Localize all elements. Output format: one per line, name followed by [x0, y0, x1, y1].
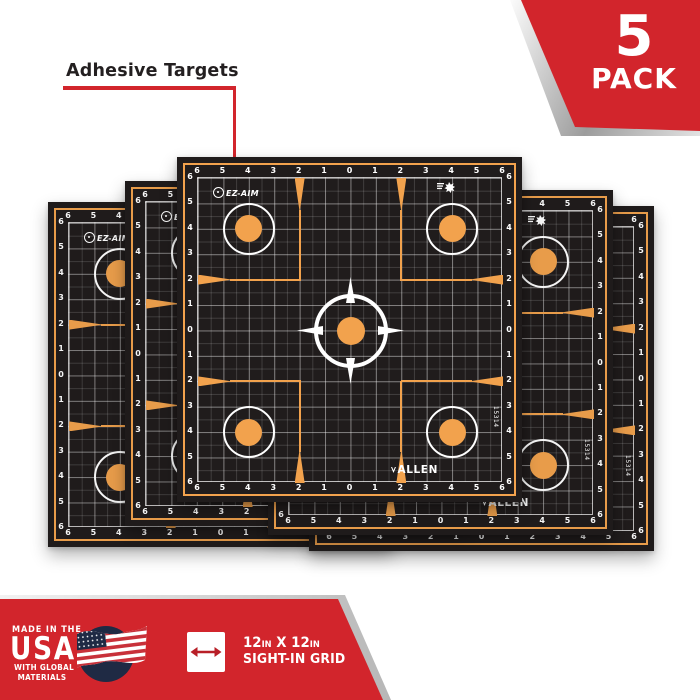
scale-number: 2	[503, 375, 515, 385]
scale-number: 0	[215, 528, 227, 538]
bullseye-dot	[439, 419, 466, 446]
scale-number: 3	[503, 248, 515, 258]
scale-number: 5	[562, 516, 574, 526]
scale-number: 0	[435, 516, 447, 526]
scale-number: 4	[333, 516, 345, 526]
size-label-line1: 12IN X 12IN	[243, 635, 320, 651]
scale-number: 5	[132, 221, 144, 231]
scale-number: 1	[55, 395, 67, 405]
scale-number: 4	[536, 516, 548, 526]
scale-number: 1	[55, 344, 67, 354]
scale-number: 1	[369, 166, 381, 176]
scale-number: 3	[184, 401, 196, 411]
bullseye-dot	[439, 215, 466, 242]
scale-number: 3	[358, 516, 370, 526]
item-number: 15314	[583, 439, 590, 461]
us-flag-icon	[74, 623, 150, 679]
scale-number: 6	[635, 526, 647, 536]
scale-number: 4	[55, 268, 67, 278]
scale-number: 2	[635, 424, 647, 434]
scale-number: 1	[503, 350, 515, 360]
aim-wedge	[469, 376, 503, 386]
scale-number: 6	[132, 196, 144, 206]
scale-number: 1	[132, 323, 144, 333]
scale-number: 1	[594, 383, 606, 393]
scale-number: 6	[594, 510, 606, 520]
reticle-icon	[84, 232, 95, 243]
scale-number: 3	[635, 297, 647, 307]
scale-number: 1	[409, 516, 421, 526]
scale-number: 3	[267, 483, 279, 493]
scale-number: 4	[445, 166, 457, 176]
aim-wedge	[69, 320, 103, 330]
scale-number: 2	[384, 516, 396, 526]
scale-number: 4	[594, 256, 606, 266]
bracket-line	[401, 380, 472, 382]
scale-number: 5	[562, 199, 574, 209]
aim-wedge	[198, 275, 232, 285]
ez-aim-logo: EZ-AIM	[213, 181, 259, 200]
scale-number: 3	[503, 401, 515, 411]
scale-number: 3	[138, 528, 150, 538]
reticle-icon	[161, 211, 172, 222]
scale-number: 5	[307, 516, 319, 526]
scale-number: 4	[132, 450, 144, 460]
aim-wedge	[146, 299, 180, 309]
scale-number: 3	[420, 483, 432, 493]
scale-number: 1	[503, 299, 515, 309]
scale-number: 4	[55, 471, 67, 481]
bullseye-dot	[337, 317, 365, 345]
crosshair-spike	[346, 358, 355, 384]
adhesive-targets-callout: Adhesive Targets	[66, 61, 239, 81]
scale-number: 5	[471, 166, 483, 176]
scale-number: 4	[184, 223, 196, 233]
crosshair-spike	[297, 326, 323, 335]
scale-number: 3	[55, 293, 67, 303]
aim-wedge	[295, 178, 305, 212]
scale-number: 3	[184, 248, 196, 258]
corner-bullseye	[517, 236, 569, 288]
aim-wedge	[146, 400, 180, 410]
scale-number: 5	[594, 230, 606, 240]
scale-number: 5	[184, 197, 196, 207]
scale-number: 3	[594, 281, 606, 291]
scale-number: 4	[113, 211, 125, 221]
scale-number: 5	[216, 166, 228, 176]
bracket-line	[400, 210, 402, 281]
scale-number: 4	[635, 272, 647, 282]
scale-number: 4	[635, 475, 647, 485]
scale-number: 2	[132, 298, 144, 308]
sight-in-grid: EZ-AIMALLEN15314	[197, 177, 502, 482]
scale-number: 1	[318, 166, 330, 176]
callout-pointer-line	[233, 86, 237, 162]
scale-number: 4	[242, 166, 254, 176]
pack-word: PACK	[575, 65, 693, 93]
scale-number: 0	[635, 374, 647, 384]
width-arrow-icon	[187, 632, 225, 672]
item-number: 15314	[492, 406, 499, 428]
scale-number: 6	[503, 477, 515, 487]
scale-number: 6	[275, 510, 287, 520]
scale-number: 0	[184, 325, 196, 335]
scale-number: 3	[55, 446, 67, 456]
scale-number: 4	[445, 483, 457, 493]
pack-ribbon-text: 5 PACK	[575, 10, 693, 93]
bracket-line	[299, 381, 301, 452]
product-image: Adhesive Targets 5 PACK 6666555544443333…	[0, 0, 700, 700]
ez-aim-logo: EZ-AIM	[84, 226, 130, 245]
bullseye-dot	[235, 215, 262, 242]
usa-text: USA	[10, 631, 76, 667]
splat-badge-icon	[528, 213, 546, 227]
scale-number: 4	[503, 223, 515, 233]
scale-number: 6	[628, 215, 640, 225]
scale-number: 0	[344, 166, 356, 176]
corner-bullseye	[426, 203, 478, 255]
with-global-materials-text: WITH GLOBAL MATERIALS	[14, 663, 74, 682]
scale-number: 4	[190, 507, 202, 517]
scale-number: 2	[394, 166, 406, 176]
reticle-icon	[213, 187, 224, 198]
bullseye-dot	[530, 452, 557, 479]
scale-number: 4	[184, 426, 196, 436]
corner-bullseye	[517, 439, 569, 491]
scale-number: 2	[635, 323, 647, 333]
scale-number: 6	[132, 501, 144, 511]
scale-number: 2	[293, 483, 305, 493]
pack-ribbon: 5 PACK	[505, 0, 700, 136]
scale-number: 1	[318, 483, 330, 493]
aim-wedge	[469, 275, 503, 285]
footer-banner: MADE IN THE USA WITH GLOBAL MATERIALS	[0, 595, 700, 700]
scale-number: 2	[184, 274, 196, 284]
scale-number: 2	[485, 516, 497, 526]
scale-number: 4	[242, 483, 254, 493]
scale-number: 6	[184, 477, 196, 487]
bracket-line	[400, 381, 402, 452]
corner-bullseye	[223, 406, 275, 458]
scale-number: 2	[594, 307, 606, 317]
bracket-line	[230, 279, 301, 281]
scale-number: 3	[215, 507, 227, 517]
scale-number: 4	[594, 459, 606, 469]
scale-number: 0	[55, 370, 67, 380]
scale-number: 4	[503, 426, 515, 436]
scale-number: 3	[132, 272, 144, 282]
scale-number: 2	[594, 408, 606, 418]
corner-bullseye	[426, 406, 478, 458]
scale-number: 5	[635, 501, 647, 511]
scale-number: 4	[536, 199, 548, 209]
scale-number: 6	[184, 172, 196, 182]
scale-number: 3	[635, 450, 647, 460]
aim-wedge	[560, 409, 594, 419]
scale-number: 2	[503, 274, 515, 284]
crosshair-spike	[378, 326, 404, 335]
scale-number: 0	[594, 358, 606, 368]
scale-number: 2	[55, 420, 67, 430]
scale-number: 1	[460, 516, 472, 526]
scale-number: 4	[113, 528, 125, 538]
scale-number: 5	[164, 190, 176, 200]
scale-number: 5	[635, 246, 647, 256]
scale-number: 6	[55, 217, 67, 227]
bracket-line	[401, 279, 472, 281]
scale-number: 1	[635, 348, 647, 358]
scale-number: 2	[184, 375, 196, 385]
scale-number: 1	[240, 528, 252, 538]
scale-number: 3	[594, 434, 606, 444]
scale-number: 1	[184, 299, 196, 309]
scale-number: 3	[420, 166, 432, 176]
aim-wedge	[198, 376, 232, 386]
scale-number: 1	[369, 483, 381, 493]
scale-number: 5	[132, 476, 144, 486]
scale-number: 6	[496, 166, 508, 176]
scale-number: 2	[164, 528, 176, 538]
bracket-line	[230, 380, 301, 382]
scale-number: 2	[394, 483, 406, 493]
allen-logo-mark	[391, 467, 396, 473]
scale-number: 2	[55, 319, 67, 329]
bullseye-dot	[235, 419, 262, 446]
scale-number: 5	[87, 211, 99, 221]
scale-number: 0	[503, 325, 515, 335]
scale-number: 5	[471, 483, 483, 493]
scale-number: 5	[503, 452, 515, 462]
scale-number: 1	[189, 528, 201, 538]
bracket-line	[299, 210, 301, 281]
aim-wedge	[69, 421, 103, 431]
scale-number: 5	[87, 528, 99, 538]
scale-number: 0	[132, 349, 144, 359]
allen-brand: ALLEN	[391, 464, 438, 476]
scale-number: 5	[184, 452, 196, 462]
aim-wedge	[295, 449, 305, 483]
item-number: 15314	[624, 455, 631, 477]
corner-bullseye	[223, 203, 275, 255]
scale-number: 1	[635, 399, 647, 409]
scale-number: 6	[55, 522, 67, 532]
scale-number: 6	[587, 199, 599, 209]
scale-number: 5	[164, 507, 176, 517]
scale-number: 3	[132, 425, 144, 435]
scale-number: 5	[55, 497, 67, 507]
scale-number: 3	[267, 166, 279, 176]
scale-number: 5	[503, 197, 515, 207]
scale-number: 2	[293, 166, 305, 176]
scale-number: 1	[132, 374, 144, 384]
scale-number: 3	[511, 516, 523, 526]
bullseye-dot	[530, 248, 557, 275]
scale-number: 1	[594, 332, 606, 342]
pack-count: 5	[575, 10, 693, 63]
splat-badge-icon	[437, 180, 455, 194]
scale-number: 4	[132, 247, 144, 257]
scale-number: 5	[55, 242, 67, 252]
sight-in-target-5: 6666555544443333222211110000111122223333…	[177, 157, 522, 502]
scale-number: 2	[132, 399, 144, 409]
scale-number: 1	[184, 350, 196, 360]
scale-number: 5	[216, 483, 228, 493]
scale-number: 2	[241, 507, 253, 517]
aim-wedge	[396, 178, 406, 212]
size-label-line2: SIGHT-IN GRID	[243, 651, 345, 667]
scale-number: 0	[344, 483, 356, 493]
crosshair-spike	[346, 277, 355, 303]
center-bullseye	[314, 294, 388, 368]
aim-wedge	[560, 308, 594, 318]
scale-number: 5	[594, 485, 606, 495]
callout-underline	[63, 86, 236, 90]
